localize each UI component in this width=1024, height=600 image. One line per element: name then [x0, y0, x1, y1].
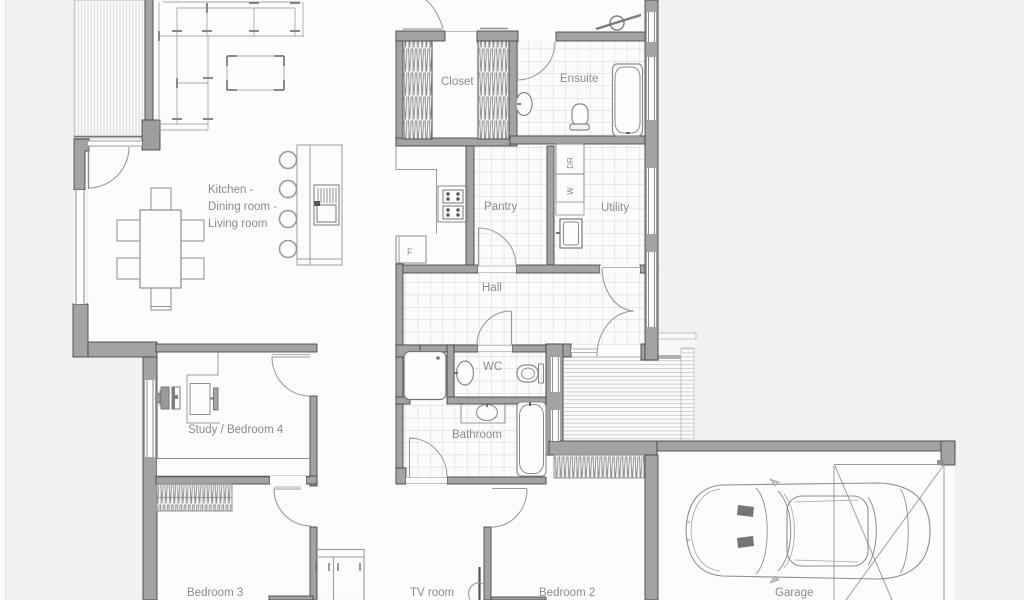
svg-text:Kitchen -: Kitchen - [208, 184, 254, 196]
svg-text:Pantry: Pantry [484, 201, 517, 213]
svg-text:Study / Bedroom 4: Study / Bedroom 4 [188, 424, 284, 436]
svg-text:Garage: Garage [775, 587, 813, 599]
svg-text:Dining room -: Dining room - [208, 201, 277, 213]
svg-text:Bedroom 2: Bedroom 2 [539, 587, 595, 599]
svg-text:Bathroom: Bathroom [452, 429, 502, 441]
svg-text:Utility: Utility [601, 202, 629, 214]
svg-text:F: F [407, 247, 413, 257]
svg-text:Living room: Living room [208, 218, 267, 230]
svg-text:DR: DR [566, 157, 575, 169]
svg-text:Hall: Hall [482, 282, 502, 294]
svg-text:Bedroom 3: Bedroom 3 [187, 587, 243, 599]
svg-text:Closet: Closet [441, 76, 474, 88]
svg-text:W: W [566, 187, 575, 195]
svg-text:Ensuite: Ensuite [560, 73, 598, 85]
svg-text:TV room: TV room [410, 587, 454, 599]
svg-text:WC: WC [483, 361, 502, 373]
